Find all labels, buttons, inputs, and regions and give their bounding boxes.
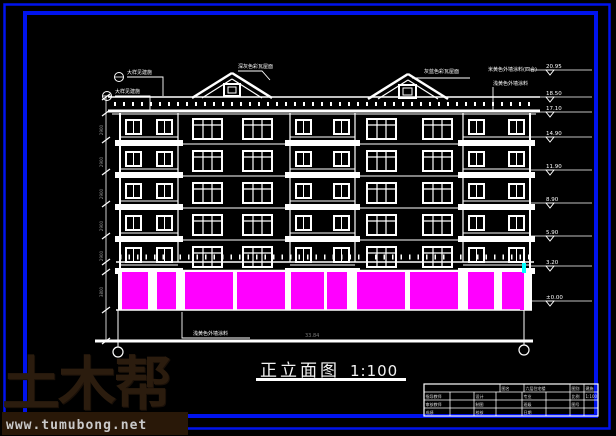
attic-window [399, 85, 416, 98]
level-flag [546, 137, 554, 142]
left-dim-value: 2900 [99, 188, 104, 199]
title-block-cell [424, 384, 500, 392]
title-block-label: 校核 [476, 409, 484, 415]
annotation-label: 大样见建施 [115, 88, 140, 95]
balcony-slab [458, 204, 535, 210]
left-dim-value: 2900 [99, 250, 104, 261]
storefront-panel [122, 272, 148, 310]
balcony-slab [458, 236, 535, 242]
axis-bubble [519, 345, 529, 355]
balcony-slab [458, 140, 535, 146]
magenta-accent [520, 277, 524, 310]
window-3pane [367, 151, 396, 171]
annotation-label: 深灰色彩瓦屋面 [238, 63, 273, 70]
title-block-label: 图别 [572, 385, 580, 391]
balcony-slab [285, 236, 360, 242]
balcony-slab [285, 204, 360, 210]
attic-window-pane [228, 87, 236, 93]
window-3pane [423, 215, 452, 235]
title-block-cell [450, 400, 474, 408]
gable-rake [368, 74, 408, 99]
storefront-panel [185, 272, 233, 310]
level-flag [546, 301, 554, 306]
level-value: 11.90 [546, 164, 562, 170]
window-3pane [367, 247, 396, 267]
window-3pane [367, 183, 396, 203]
balcony-slab [285, 140, 360, 146]
window-3pane [367, 215, 396, 235]
window-3pane [243, 215, 272, 235]
storefront-panel [291, 272, 324, 310]
cad-viewport: 29002900290029002900380020.9518.5017.101… [0, 0, 616, 436]
level-flag [546, 266, 554, 271]
level-flag [546, 97, 554, 102]
level-flag [546, 203, 554, 208]
balcony-slab [285, 172, 360, 178]
title-block-label: 成绩 [426, 409, 434, 415]
watermark: 土木帮 www.tumubong.net [2, 358, 188, 435]
cyan-accent [522, 263, 526, 273]
level-flag [546, 170, 554, 175]
balcony-slab [115, 172, 183, 178]
level-value: 17.10 [546, 106, 562, 112]
window-3pane [367, 119, 396, 139]
title-block-label: 班级 [524, 401, 532, 407]
title-block-label: 图名 [502, 385, 510, 391]
title-block-label: 图号 [572, 401, 580, 407]
balcony-slab [115, 236, 183, 242]
title-block-label: 1:100 [586, 394, 598, 399]
title-block-cell [496, 392, 522, 400]
window-3pane [423, 183, 452, 203]
title-block-cell [496, 400, 522, 408]
balcony-slab [115, 140, 183, 146]
window-3pane [193, 119, 222, 139]
level-value: 20.95 [546, 64, 562, 70]
title-block-label: 六层住宅楼 [526, 385, 546, 391]
level-value: 14.90 [546, 131, 562, 137]
level-flag [546, 70, 554, 75]
title-block-label: 审核教师 [426, 401, 442, 407]
title-block-label: 日期 [524, 409, 532, 415]
title-block: 图名六层住宅楼图别建施指导教师设计专业比例1:100审核教师制图班级图号成绩校核… [424, 384, 598, 416]
balcony-slab [458, 172, 535, 178]
storefront-panel [357, 272, 405, 310]
level-value: 3.20 [546, 260, 559, 266]
title-block-label: 建施 [586, 385, 594, 391]
title-block-cell [546, 392, 570, 400]
window-3pane [243, 119, 272, 139]
window-3pane [193, 151, 222, 171]
title-block-label: 制图 [476, 401, 484, 407]
building-elevation [95, 73, 540, 357]
window-3pane [243, 183, 272, 203]
annotation-label: 大样见建施 [127, 69, 152, 76]
level-flag [546, 236, 554, 241]
storefront-panel [327, 272, 347, 310]
left-dim-value: 3800 [99, 286, 104, 297]
bottom-dimension-value: 33.84 [305, 333, 319, 339]
title-block-cell [450, 392, 474, 400]
window-3pane [423, 119, 452, 139]
attic-window [224, 84, 240, 96]
window-3pane [243, 151, 272, 171]
level-value: ±0.00 [546, 295, 563, 301]
level-flag [546, 112, 554, 117]
title-block-label: 设计 [476, 393, 484, 399]
window-3pane [193, 215, 222, 235]
attic-window-pane [403, 88, 412, 95]
storefront-panel [237, 272, 285, 310]
level-value: 18.50 [546, 91, 562, 97]
title-block-label: 比例 [572, 393, 580, 399]
title-block-label: 指导教师 [426, 393, 442, 399]
left-dim-value: 2900 [99, 124, 104, 135]
level-value: 5.90 [546, 230, 559, 236]
annotation-label: 浅黄色外墙涂料 [193, 330, 228, 337]
annotation-label: 米黄色外墙涂料(四合) [488, 66, 537, 73]
title-block-label: 专业 [524, 393, 532, 399]
left-dim-value: 2900 [99, 220, 104, 231]
window-3pane [193, 183, 222, 203]
watermark-url[interactable]: www.tumubong.net [6, 418, 147, 433]
title-block-cell [546, 400, 570, 408]
title-underline [256, 378, 406, 381]
storefront-panel [468, 272, 494, 310]
left-dim-value: 2900 [99, 156, 104, 167]
level-value: 8.90 [546, 197, 559, 203]
balcony-slab [115, 204, 183, 210]
watermark-brand: 土木帮 [2, 358, 188, 410]
gable-rake [192, 73, 232, 98]
annotation-label: 灰蓝色彩瓦屋面 [424, 68, 459, 75]
storefront-panel [157, 272, 176, 310]
annotation-label: 浅黄色外墙涂料 [493, 80, 528, 87]
window-3pane [423, 151, 452, 171]
gable-rake [232, 73, 272, 98]
storefront-panel [410, 272, 458, 310]
